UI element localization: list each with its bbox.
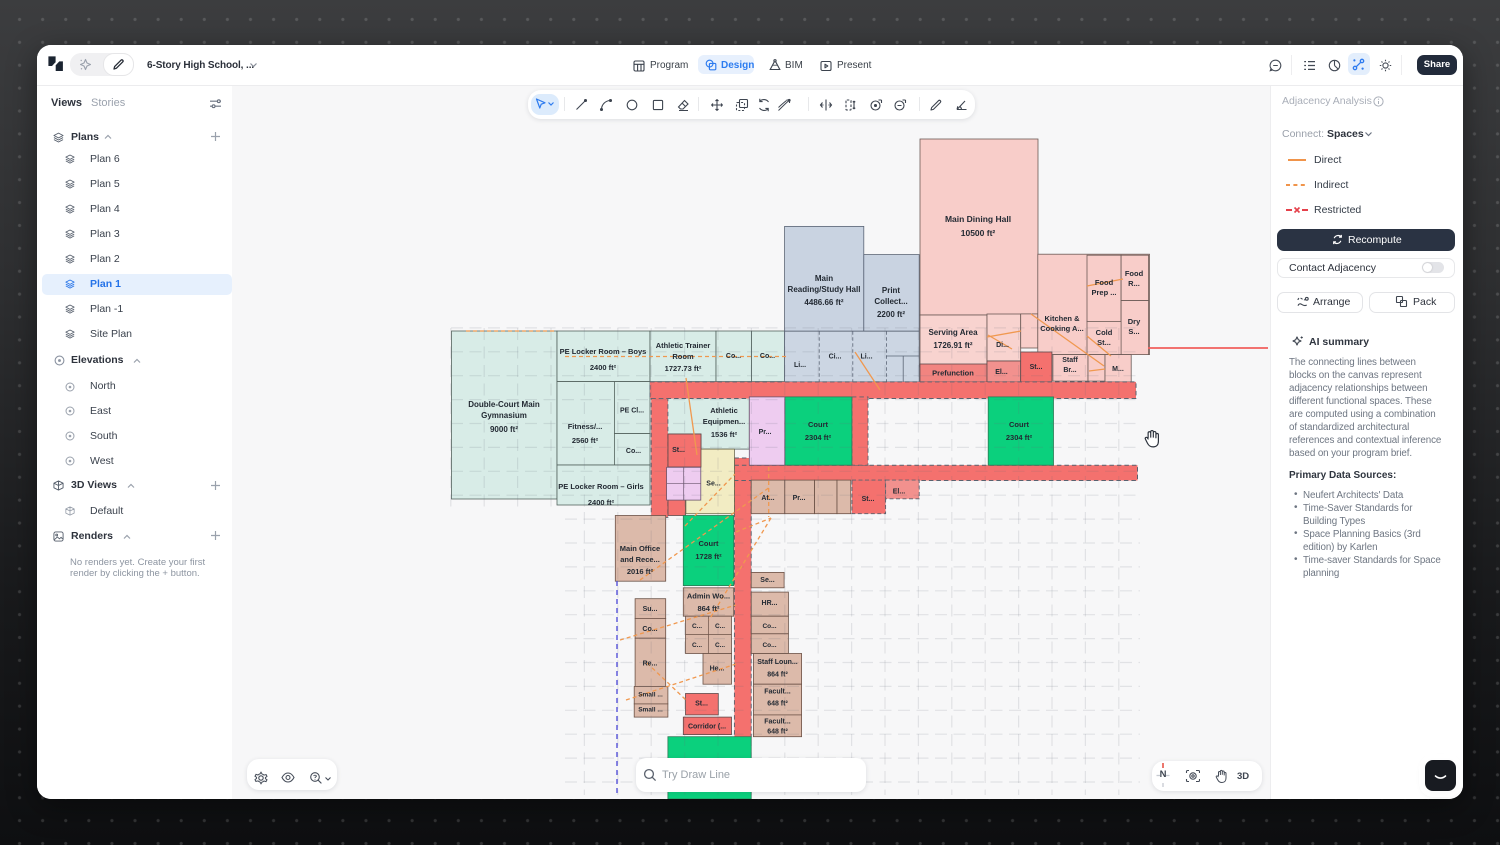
svg-text:Food: Food	[1125, 269, 1144, 278]
svg-text:At...: At...	[761, 495, 774, 502]
svg-text:Co...: Co...	[642, 626, 657, 633]
svg-text:Dry: Dry	[1128, 317, 1141, 326]
svg-text:Prep ...: Prep ...	[1091, 288, 1116, 297]
svg-text:PE Locker Room – Boys: PE Locker Room – Boys	[560, 347, 647, 356]
svg-text:2560 ft²: 2560 ft²	[572, 436, 599, 445]
svg-text:Main: Main	[815, 274, 833, 283]
svg-text:Gymnasium: Gymnasium	[481, 411, 527, 420]
svg-text:864 ft²: 864 ft²	[697, 604, 720, 613]
svg-text:1726.91 ft²: 1726.91 ft²	[933, 341, 972, 350]
svg-text:Room: Room	[672, 352, 694, 361]
svg-text:Court: Court	[1009, 420, 1029, 429]
svg-text:864 ft²: 864 ft²	[767, 672, 788, 679]
svg-text:Li...: Li...	[860, 354, 872, 361]
svg-text:1728 ft²: 1728 ft²	[695, 552, 722, 561]
svg-text:Br...: Br...	[1063, 367, 1076, 374]
svg-text:Prefunction: Prefunction	[932, 369, 974, 378]
svg-text:4486.66 ft²: 4486.66 ft²	[804, 298, 843, 307]
svg-text:Kitchen &: Kitchen &	[1044, 314, 1080, 323]
svg-text:1536 ft²: 1536 ft²	[711, 430, 738, 439]
svg-text:9000 ft²: 9000 ft²	[490, 425, 518, 434]
svg-text:PE Cl...: PE Cl...	[620, 408, 644, 415]
svg-text:Serving Area: Serving Area	[928, 328, 978, 337]
svg-text:10500 ft²: 10500 ft²	[961, 228, 996, 238]
svg-text:Cooking A...: Cooking A...	[1040, 324, 1083, 333]
svg-text:Co...: Co...	[626, 448, 641, 455]
svg-text:Facult...: Facult...	[764, 719, 791, 726]
svg-text:648 ft²: 648 ft²	[767, 701, 788, 708]
svg-text:Collect...: Collect...	[874, 297, 907, 306]
svg-text:Admin Wo...: Admin Wo...	[687, 592, 730, 601]
svg-text:R...: R...	[1128, 279, 1140, 288]
svg-text:S...: S...	[1128, 327, 1139, 336]
svg-text:2200 ft²: 2200 ft²	[877, 310, 905, 319]
svg-text:Athletic Trainer: Athletic Trainer	[656, 341, 711, 350]
svg-text:1727.73 ft²: 1727.73 ft²	[665, 364, 702, 373]
svg-text:2304 ft²: 2304 ft²	[1006, 433, 1033, 442]
svg-text:Cold: Cold	[1096, 328, 1113, 337]
svg-text:and Rece...: and Rece...	[620, 555, 660, 564]
svg-text:Print: Print	[882, 286, 901, 295]
svg-text:St...: St...	[1030, 364, 1043, 371]
svg-text:Main Office: Main Office	[620, 544, 660, 553]
svg-text:St...: St...	[862, 496, 875, 503]
svg-text:El...: El...	[893, 489, 906, 496]
svg-text:2400 ft²: 2400 ft²	[590, 363, 617, 372]
svg-text:Li...: Li...	[794, 362, 806, 369]
svg-text:Se...: Se...	[706, 481, 720, 488]
svg-text:2016 ft²: 2016 ft²	[627, 567, 654, 576]
svg-text:Court: Court	[808, 420, 828, 429]
svg-text:Co...: Co...	[762, 642, 776, 649]
svg-text:2304 ft²: 2304 ft²	[805, 433, 832, 442]
svg-text:El...: El...	[995, 369, 1008, 376]
svg-text:Main Dining Hall: Main Dining Hall	[945, 214, 1011, 224]
svg-text:Co...: Co...	[762, 623, 776, 630]
svg-text:Staff Loun...: Staff Loun...	[757, 659, 797, 666]
svg-text:Fitness/...: Fitness/...	[568, 422, 603, 431]
svg-text:Di...: Di...	[996, 342, 1009, 349]
svg-text:Se...: Se...	[760, 577, 774, 584]
svg-text:St...: St...	[695, 701, 708, 708]
svg-text:Court: Court	[699, 539, 719, 548]
svg-text:Corridor (...: Corridor (...	[688, 724, 726, 731]
svg-text:Facult...: Facult...	[764, 689, 791, 696]
svg-text:Co...: Co...	[726, 353, 741, 360]
svg-text:Reading/Study Hall: Reading/Study Hall	[788, 285, 861, 294]
svg-text:St...: St...	[672, 447, 685, 454]
svg-text:St...: St...	[1097, 338, 1111, 347]
svg-text:Re...: Re...	[643, 661, 658, 668]
svg-text:Pr...: Pr...	[793, 495, 806, 502]
svg-text:C...: C...	[715, 623, 725, 630]
svg-text:Staff: Staff	[1062, 357, 1078, 364]
svg-text:Pr...: Pr...	[759, 429, 772, 436]
svg-text:Double-Court Main: Double-Court Main	[468, 400, 540, 409]
svg-text:Athletic: Athletic	[710, 406, 738, 415]
svg-text:Food: Food	[1095, 278, 1114, 287]
svg-text:Co...: Co...	[760, 353, 775, 360]
svg-text:C...: C...	[692, 642, 702, 649]
svg-text:HR...: HR...	[762, 600, 778, 607]
svg-text:Ci...: Ci...	[829, 354, 842, 361]
svg-text:PE Locker Room – Girls: PE Locker Room – Girls	[558, 482, 643, 491]
svg-text:C...: C...	[715, 642, 725, 649]
svg-text:Su...: Su...	[643, 606, 658, 613]
svg-text:M...: M...	[1112, 366, 1124, 373]
svg-text:Equipmen...: Equipmen...	[703, 417, 746, 426]
svg-text:He...: He...	[710, 666, 725, 673]
svg-text:Small ...: Small ...	[638, 692, 663, 699]
svg-text:648 ft²: 648 ft²	[767, 729, 788, 736]
svg-text:2400 ft²: 2400 ft²	[588, 498, 615, 507]
svg-text:Small ...: Small ...	[638, 707, 663, 714]
svg-text:C...: C...	[692, 623, 702, 630]
